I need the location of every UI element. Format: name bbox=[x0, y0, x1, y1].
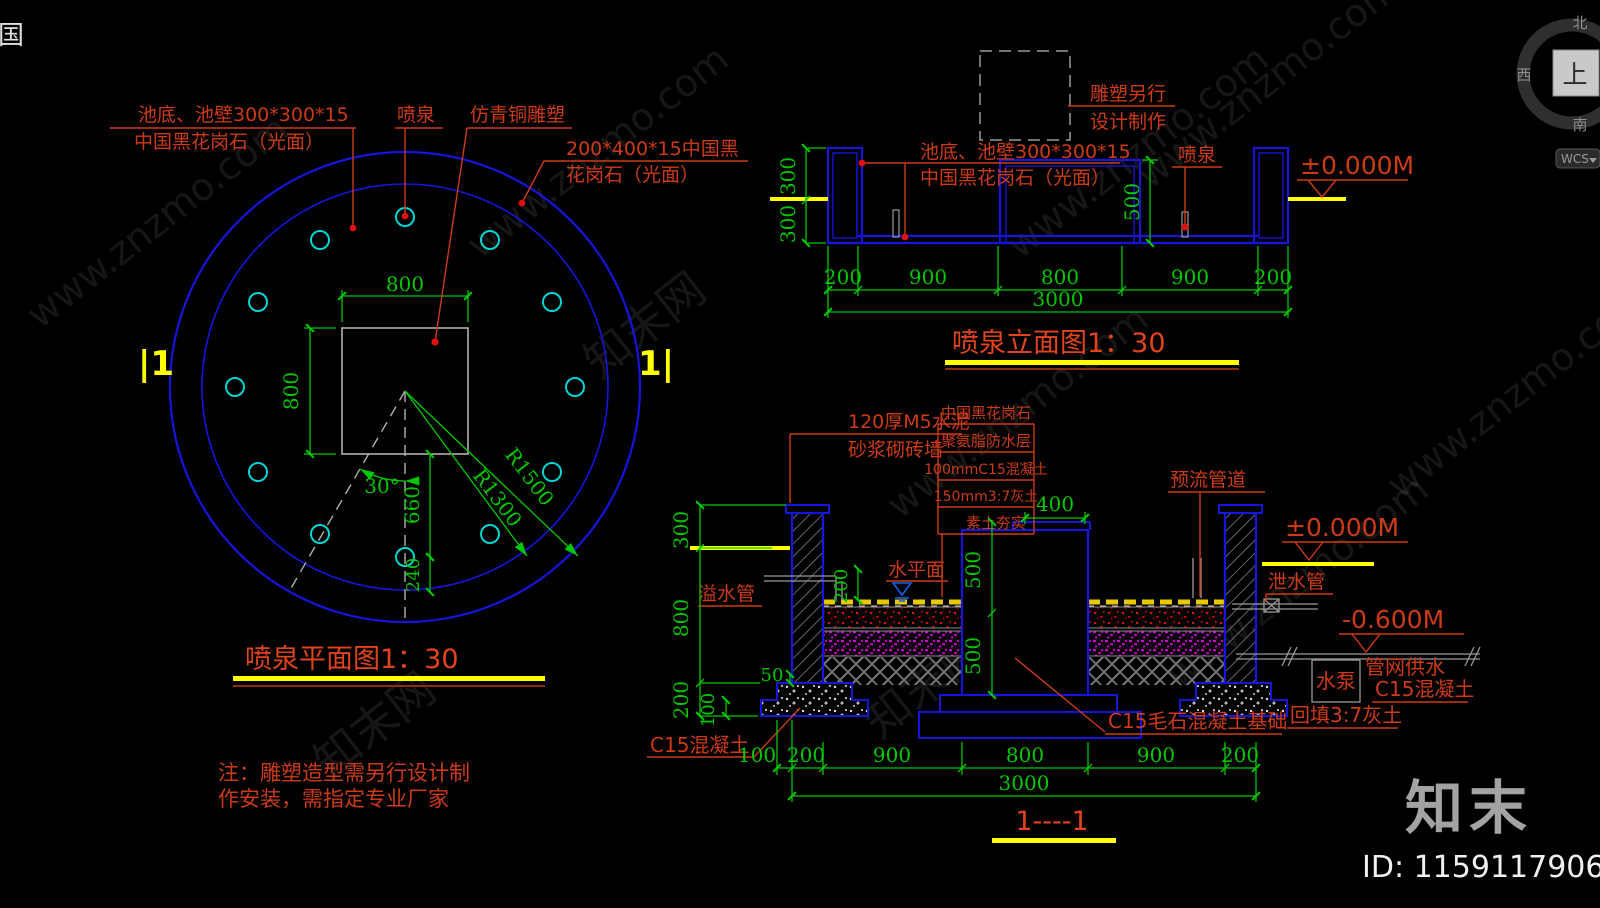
section-dim-row-4: 900 bbox=[1137, 743, 1175, 767]
plan-label-pool-tile-2: 中国黑花岗石（光面） bbox=[134, 131, 324, 153]
elevation-title: 喷泉立面图1：30 bbox=[952, 328, 1166, 359]
nozzle-circle bbox=[249, 463, 267, 481]
plan-title: 喷泉平面图1：30 bbox=[245, 644, 459, 675]
section-dim-water-200: 200 bbox=[831, 569, 852, 603]
section-view: 120厚M5水泥 砂浆砌砖墙 中国黑花岗石 聚氨脂防水层 100mmC15混凝土… bbox=[647, 404, 1480, 843]
section-stack-waterproof: 聚氨脂防水层 bbox=[941, 432, 1031, 450]
corner-osnap-icon: 国 bbox=[0, 21, 24, 51]
nozzle-circle bbox=[566, 378, 584, 396]
elevation-label-fountain: 喷泉 bbox=[1178, 144, 1216, 166]
section-label-foundation: C15毛石混凝土基础 bbox=[1108, 709, 1287, 733]
section-dim-500-a: 500 bbox=[961, 551, 985, 589]
section-dim-400: 400 bbox=[1036, 492, 1074, 516]
section-level-0: ±0.000M bbox=[1285, 513, 1399, 542]
elevation-nozzle-pipe-left bbox=[893, 210, 899, 237]
elevation-dim-300-bottom: 300 bbox=[776, 205, 800, 243]
section-dim-300: 300 bbox=[669, 511, 693, 549]
elevation-dim-500: 500 bbox=[1120, 183, 1144, 221]
lime-soil-layer bbox=[1088, 657, 1225, 685]
elevation-title-underline-2 bbox=[945, 368, 1239, 370]
drawing-id-text: ID: 1159117906 bbox=[1362, 850, 1600, 885]
elevation-dim-total: 3000 bbox=[1033, 287, 1084, 311]
left-wall-cap bbox=[786, 505, 829, 513]
elevation-label-pool-tile-2: 中国黑花岗石（光面） bbox=[920, 167, 1110, 189]
view-cube[interactable]: 北 西 南 上 WCS bbox=[1516, 14, 1600, 168]
nozzle-circle bbox=[543, 293, 561, 311]
section-label-preflow-pipe: 预流管道 bbox=[1170, 469, 1246, 491]
section-label-backfill: 回填3:7灰土 bbox=[1290, 703, 1402, 727]
site-branding: 知末 ID: 1159117906 bbox=[1362, 774, 1600, 885]
elevation-title-underline bbox=[945, 360, 1239, 365]
plan-inner-circle bbox=[202, 184, 608, 590]
plan-dim-angle: 30° bbox=[364, 474, 399, 498]
section-label-supply-1: 管网供水 bbox=[1365, 655, 1445, 679]
elevation-level-mark: ±0.000M bbox=[1300, 151, 1414, 180]
section-label-supply-2: C15混凝土 bbox=[1375, 677, 1474, 701]
plan-label-fountain: 喷泉 bbox=[397, 104, 435, 126]
plan-dim-240: 240 bbox=[403, 558, 424, 592]
nozzle-circle bbox=[226, 378, 244, 396]
section-stack-granite: 中国黑花岗石 bbox=[941, 404, 1031, 422]
plan-label-coping-1: 200*400*15中国黑 bbox=[566, 138, 739, 160]
section-label-footing-concrete: C15混凝土 bbox=[650, 733, 749, 757]
nozzle-circle bbox=[249, 293, 267, 311]
plan-section-marker-left: |1 bbox=[138, 344, 174, 384]
section-label-overflow-pipe: 溢水管 bbox=[698, 583, 755, 605]
lime-soil-layer bbox=[823, 657, 962, 685]
left-footing bbox=[761, 683, 868, 716]
section-dim-row-1: 200 bbox=[787, 743, 825, 767]
plan-dim-top: 800 bbox=[386, 272, 424, 296]
elevation-dim-row-4: 200 bbox=[1254, 265, 1292, 289]
section-stack-lime: 150mm3:7灰土 bbox=[934, 489, 1039, 505]
waterproof-layer bbox=[823, 607, 962, 628]
plan-label-sculpture: 仿青铜雕塑 bbox=[470, 104, 565, 126]
view-cube-top-label[interactable]: 上 bbox=[1562, 60, 1587, 89]
section-dim-row-2: 900 bbox=[873, 743, 911, 767]
section-title-underline bbox=[992, 838, 1116, 843]
elevation-dim-row-3: 900 bbox=[1171, 265, 1209, 289]
plan-note-line-1: 注：雕塑造型需另行设计制 bbox=[218, 761, 470, 785]
section-stack-soil: 素土夯实 bbox=[966, 514, 1026, 532]
section-dim-500-b: 500 bbox=[961, 637, 985, 675]
plan-label-pool-tile-1: 池底、池壁300*300*15 bbox=[138, 104, 349, 126]
waterproof-layer bbox=[1088, 607, 1225, 628]
section-label-water-surface: 水平面 bbox=[888, 559, 945, 581]
section-dim-50: 50 bbox=[761, 665, 784, 686]
plan-title-underline-2 bbox=[233, 685, 545, 687]
plan-title-underline bbox=[233, 676, 545, 681]
section-dim-row-3: 800 bbox=[1006, 743, 1044, 767]
section-level-600: -0.600M bbox=[1342, 605, 1444, 634]
section-dim-row-0: 100 bbox=[738, 743, 776, 767]
nozzle-circle bbox=[481, 525, 499, 543]
view-cube-west[interactable]: 西 bbox=[1516, 66, 1531, 84]
section-dim-100: 100 bbox=[698, 693, 719, 727]
watermark-text: www.znzmo.com bbox=[1378, 276, 1600, 507]
elevation-dim-row-2: 800 bbox=[1041, 265, 1079, 289]
plan-section-marker-right: 1| bbox=[638, 344, 674, 384]
section-dim-200: 200 bbox=[669, 681, 693, 719]
plan-note-line-2: 作安装，需指定专业厂家 bbox=[218, 787, 449, 811]
section-label-pump: 水泵 bbox=[1316, 669, 1356, 693]
section-dim-row-5: 200 bbox=[1221, 743, 1259, 767]
elevation-label-pool-tile-1: 池底、池壁300*300*15 bbox=[920, 141, 1131, 163]
wcs-dropdown-label[interactable]: WCS bbox=[1561, 152, 1589, 166]
elevation-sculpture-placeholder bbox=[980, 51, 1070, 140]
view-cube-north[interactable]: 北 bbox=[1572, 14, 1587, 32]
section-dim-800: 800 bbox=[669, 599, 693, 637]
elevation-dim-row-0: 200 bbox=[824, 265, 862, 289]
elevation-dim-row-1: 900 bbox=[909, 265, 947, 289]
znzmo-logo: 知末 bbox=[1405, 774, 1533, 842]
section-label-brick-2: 砂浆砌砖墙 bbox=[848, 439, 943, 461]
plan-dim-660: 660 bbox=[400, 486, 424, 524]
view-cube-south[interactable]: 南 bbox=[1572, 116, 1587, 134]
cad-canvas: www.znzmo.com www.znzmo.com 知末网 www.znzm… bbox=[0, 0, 1600, 908]
nozzle-circle bbox=[311, 231, 329, 249]
pedestal-plinth bbox=[940, 695, 1117, 712]
section-stack-concrete: 100mmC15混凝土 bbox=[924, 462, 1048, 478]
plan-label-coping-2: 花岗石（光面） bbox=[566, 164, 699, 186]
water-level-icon bbox=[893, 583, 911, 601]
section-dim-total: 3000 bbox=[999, 771, 1050, 795]
section-label-drain-pipe: 泄水管 bbox=[1268, 571, 1325, 593]
section-title: 1----1 bbox=[1015, 806, 1088, 837]
plan-outer-circle bbox=[170, 152, 640, 622]
elevation-label-sculpture-2: 设计制作 bbox=[1090, 111, 1166, 133]
concrete-layer bbox=[823, 631, 962, 656]
elevation-dim-300-top: 300 bbox=[776, 157, 800, 195]
plan-dimension-lines bbox=[304, 290, 578, 592]
plan-dim-left: 800 bbox=[279, 372, 303, 410]
nozzle-circle bbox=[311, 525, 329, 543]
left-wall bbox=[792, 513, 823, 685]
right-wall-cap bbox=[1219, 505, 1262, 513]
elevation-label-sculpture-1: 雕塑另行 bbox=[1090, 83, 1166, 105]
concrete-layer bbox=[1088, 631, 1225, 656]
